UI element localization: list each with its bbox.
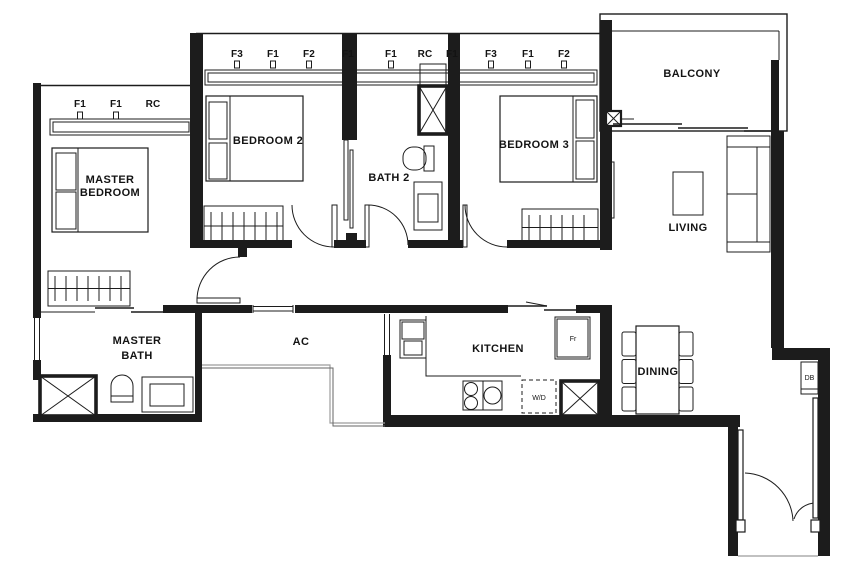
room-label-living: LIVING	[668, 222, 707, 234]
dining-chair	[622, 332, 636, 356]
living-furniture	[609, 136, 770, 252]
doors	[197, 205, 820, 556]
room-label-bedroom-2: BEDROOM 2	[233, 135, 303, 147]
bath2-fixtures	[403, 146, 442, 230]
master-wardrobe	[48, 271, 130, 306]
kitchen-shelter-shaft	[561, 381, 599, 416]
marker-top-0: F3	[231, 49, 243, 60]
dining-chair	[679, 387, 693, 411]
master-bath-shaft	[40, 376, 96, 416]
master-bath-west-window	[35, 318, 40, 362]
hob	[463, 381, 483, 410]
ac-ledge-edge	[202, 365, 385, 426]
bath2-shaft	[419, 86, 447, 134]
marker-top-9: F2	[558, 49, 570, 60]
marker-left-2: RC	[146, 99, 161, 110]
sofa	[727, 136, 770, 252]
marker-top-7: F3	[485, 49, 497, 60]
room-label-master-bedroom-2: BEDROOM	[80, 187, 140, 199]
room-label-master-bedroom: MASTER	[86, 174, 135, 186]
marker-top-5: RC	[418, 49, 433, 60]
kitchen-sink	[483, 381, 502, 410]
room-label-master-bath-2: BATH	[121, 350, 152, 362]
bath2-basin	[418, 194, 438, 222]
marker-top-4: F1	[385, 49, 397, 60]
balcony-sliding-door	[613, 124, 771, 131]
master-basin	[150, 384, 184, 406]
kitchen-west-window	[385, 314, 390, 356]
room-label-master-bath: MASTER	[113, 335, 162, 347]
bedroom2-wardrobe	[204, 206, 283, 245]
db-label: DB	[805, 375, 815, 382]
master-suite-door	[197, 257, 240, 303]
marker-top-8: F1	[522, 49, 534, 60]
master-bath-fixtures	[111, 375, 193, 412]
room-label-dining: DINING	[638, 366, 679, 378]
room-label-ac: AC	[293, 336, 310, 348]
corridor-window	[253, 305, 293, 313]
coffee-table	[673, 172, 703, 215]
dining-chair	[679, 332, 693, 356]
wall-marker-labels: F3 F1 F2 F1 F1 RC F1 F3 F1 F2 F1 F1 RC	[74, 49, 570, 110]
bath2-pocket-door	[344, 140, 353, 228]
floor-plan-page: MASTER BEDROOM BEDROOM 2 BATH 2 BEDROOM …	[0, 0, 848, 570]
bedroom2-door	[292, 205, 337, 247]
marker-top-2: F2	[303, 49, 315, 60]
master-bath-sliding-door	[41, 308, 166, 312]
bath2-toilet-bowl	[403, 147, 426, 170]
marker-left-1: F1	[110, 99, 122, 110]
marker-top-3: F1	[342, 49, 354, 60]
fridge-label: Fr	[570, 336, 577, 343]
dining-chair	[679, 360, 693, 384]
kitchen-sliding-door	[508, 302, 578, 310]
floor-plan-drawing: MASTER BEDROOM BEDROOM 2 BATH 2 BEDROOM …	[0, 0, 848, 570]
washer-dryer-label: W/D	[532, 395, 546, 402]
dining-chair	[622, 387, 636, 411]
marker-top-6: F1	[446, 49, 458, 60]
room-label-bath-2: BATH 2	[368, 172, 409, 184]
room-label-balcony: BALCONY	[663, 68, 720, 80]
room-label-kitchen: KITCHEN	[472, 343, 524, 355]
bedroom3-door	[463, 205, 507, 247]
marker-top-1: F1	[267, 49, 279, 60]
dining-chair	[622, 360, 636, 384]
marker-left-0: F1	[74, 99, 86, 110]
room-label-bedroom-3: BEDROOM 3	[499, 139, 569, 151]
master-toilet	[111, 375, 133, 402]
bath2-door	[365, 205, 408, 247]
entrance-door	[736, 398, 820, 556]
